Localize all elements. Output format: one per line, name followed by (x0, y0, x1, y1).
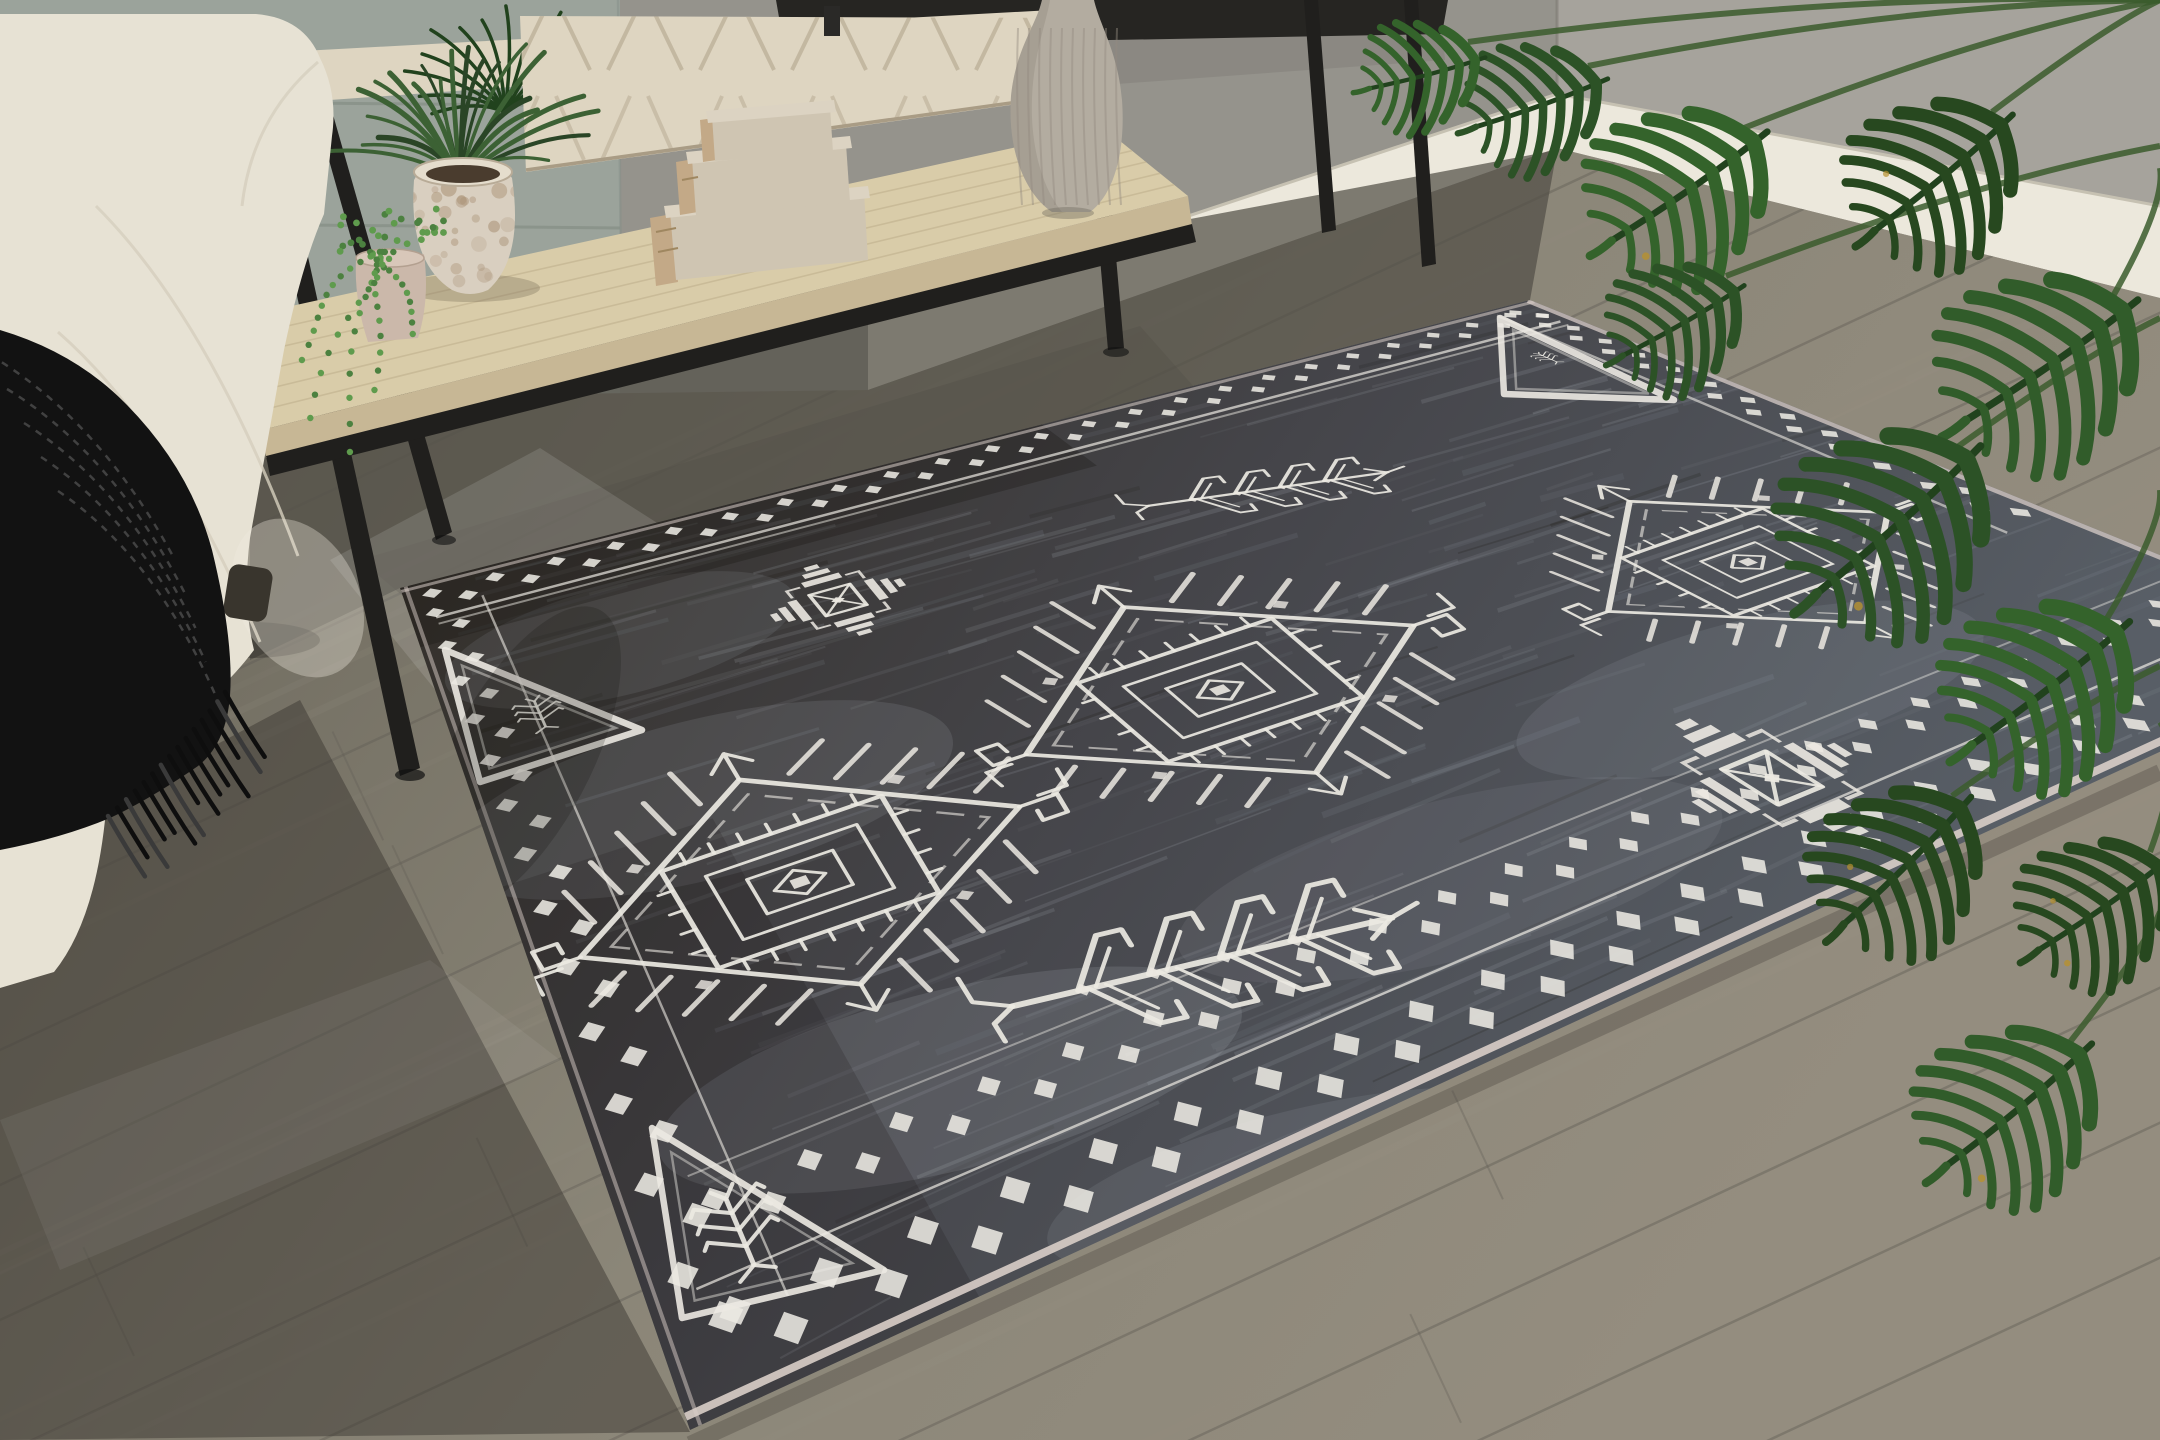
pearl-bead (345, 315, 351, 321)
mosaic-speckle (451, 263, 462, 274)
pearl-bead (356, 310, 362, 316)
mosaic-speckle (438, 206, 451, 219)
pearl-bead (311, 328, 317, 334)
pearl-leaf (356, 237, 363, 244)
pearl-bead (352, 328, 358, 334)
pearl-bead (318, 370, 324, 376)
pearl-bead (347, 265, 353, 271)
pearl-bead (305, 342, 311, 348)
pearl-leaf (398, 216, 405, 223)
pearl-bead (407, 299, 413, 305)
mosaic-speckle (430, 255, 442, 267)
pearl-leaf (440, 217, 447, 224)
pearl-bead (371, 387, 377, 393)
pearl-bead (371, 280, 377, 286)
pot-soil (426, 165, 500, 183)
pearl-bead (348, 348, 354, 354)
sofa-foot (222, 563, 274, 623)
pearl-leaf (353, 220, 360, 227)
pearl-bead (365, 286, 371, 292)
pearl-bead (357, 259, 363, 265)
pearl-leaf (381, 234, 388, 241)
pearl-bead (307, 415, 313, 421)
mosaic-speckle (452, 228, 459, 235)
mosaic-speckle (477, 268, 492, 283)
mosaic-speckle (491, 183, 507, 199)
pearl-leaf (430, 224, 437, 231)
pearl-bead (362, 294, 368, 300)
pearl-bead (335, 331, 341, 337)
pearl-bead (408, 309, 414, 315)
leg-foot-shadow (395, 769, 425, 781)
pearl-leaf (337, 222, 344, 229)
mosaic-speckle (453, 275, 466, 288)
pearl-bead (390, 249, 396, 255)
mosaic-speckle (472, 214, 480, 222)
pearl-leaf (375, 232, 382, 239)
pearl-leaf (394, 237, 401, 244)
pearl-bead (315, 314, 321, 320)
pearl-leaf (433, 206, 440, 213)
pearl-bead (347, 421, 353, 427)
pearl-leaf (416, 218, 423, 225)
pearl-bead (346, 395, 352, 401)
pearl-leaf (424, 229, 431, 236)
mosaic-speckle (431, 186, 438, 193)
leg-foot-shadow (432, 535, 456, 545)
pearl-bead (330, 282, 336, 288)
pearl-bead (373, 256, 379, 262)
pearl-bead (382, 249, 388, 255)
pearl-bead (347, 370, 353, 376)
mosaic-speckle (469, 196, 476, 203)
pearl-leaf (369, 227, 376, 234)
mosaic-speckle (500, 217, 515, 232)
pearl-bead (338, 273, 344, 279)
pearl-leaf (404, 240, 411, 247)
pearl-bead (356, 300, 362, 306)
living-room-rug-photo (0, 0, 2160, 1440)
mosaic-speckle (488, 221, 500, 233)
pearl-leaf (348, 239, 355, 246)
mosaic-speckle (451, 238, 459, 246)
pearl-bead (299, 357, 305, 363)
pearl-bead (379, 261, 385, 267)
pearl-bead (386, 267, 392, 273)
pearl-bead (404, 290, 410, 296)
pearl-bead (377, 349, 383, 355)
pearl-bead (410, 331, 416, 337)
pearl-bead (312, 391, 318, 397)
pearl-bead (372, 291, 378, 297)
mosaic-speckle (431, 192, 442, 203)
pearl-leaf (391, 220, 398, 227)
pearl-bead (325, 350, 331, 356)
pearl-bead (375, 367, 381, 373)
pearl-bead (374, 304, 380, 310)
pearl-bead (323, 292, 329, 298)
cabinet-hinge (824, 6, 840, 36)
pearl-leaf (386, 208, 393, 215)
pearl-bead (372, 270, 378, 276)
mosaic-speckle (456, 196, 468, 208)
pearl-bead (376, 317, 382, 323)
leg-foot-shadow (1103, 347, 1129, 357)
pearl-leaf (440, 229, 447, 236)
mosaic-speckle (441, 251, 448, 258)
pearl-bead (386, 256, 392, 262)
pearl-bead (399, 281, 405, 287)
pearl-bead (377, 333, 383, 339)
pearl-bead (347, 449, 353, 455)
vase-shadow (1042, 207, 1094, 219)
mosaic-speckle (499, 237, 509, 247)
pearl-bead (409, 319, 415, 325)
mosaic-speckle (471, 236, 487, 252)
pearl-bead (319, 303, 325, 309)
pearl-bead (393, 274, 399, 280)
pearl-leaf (340, 213, 347, 220)
pearl-leaf (418, 236, 425, 243)
pearl-leaf (337, 248, 344, 255)
